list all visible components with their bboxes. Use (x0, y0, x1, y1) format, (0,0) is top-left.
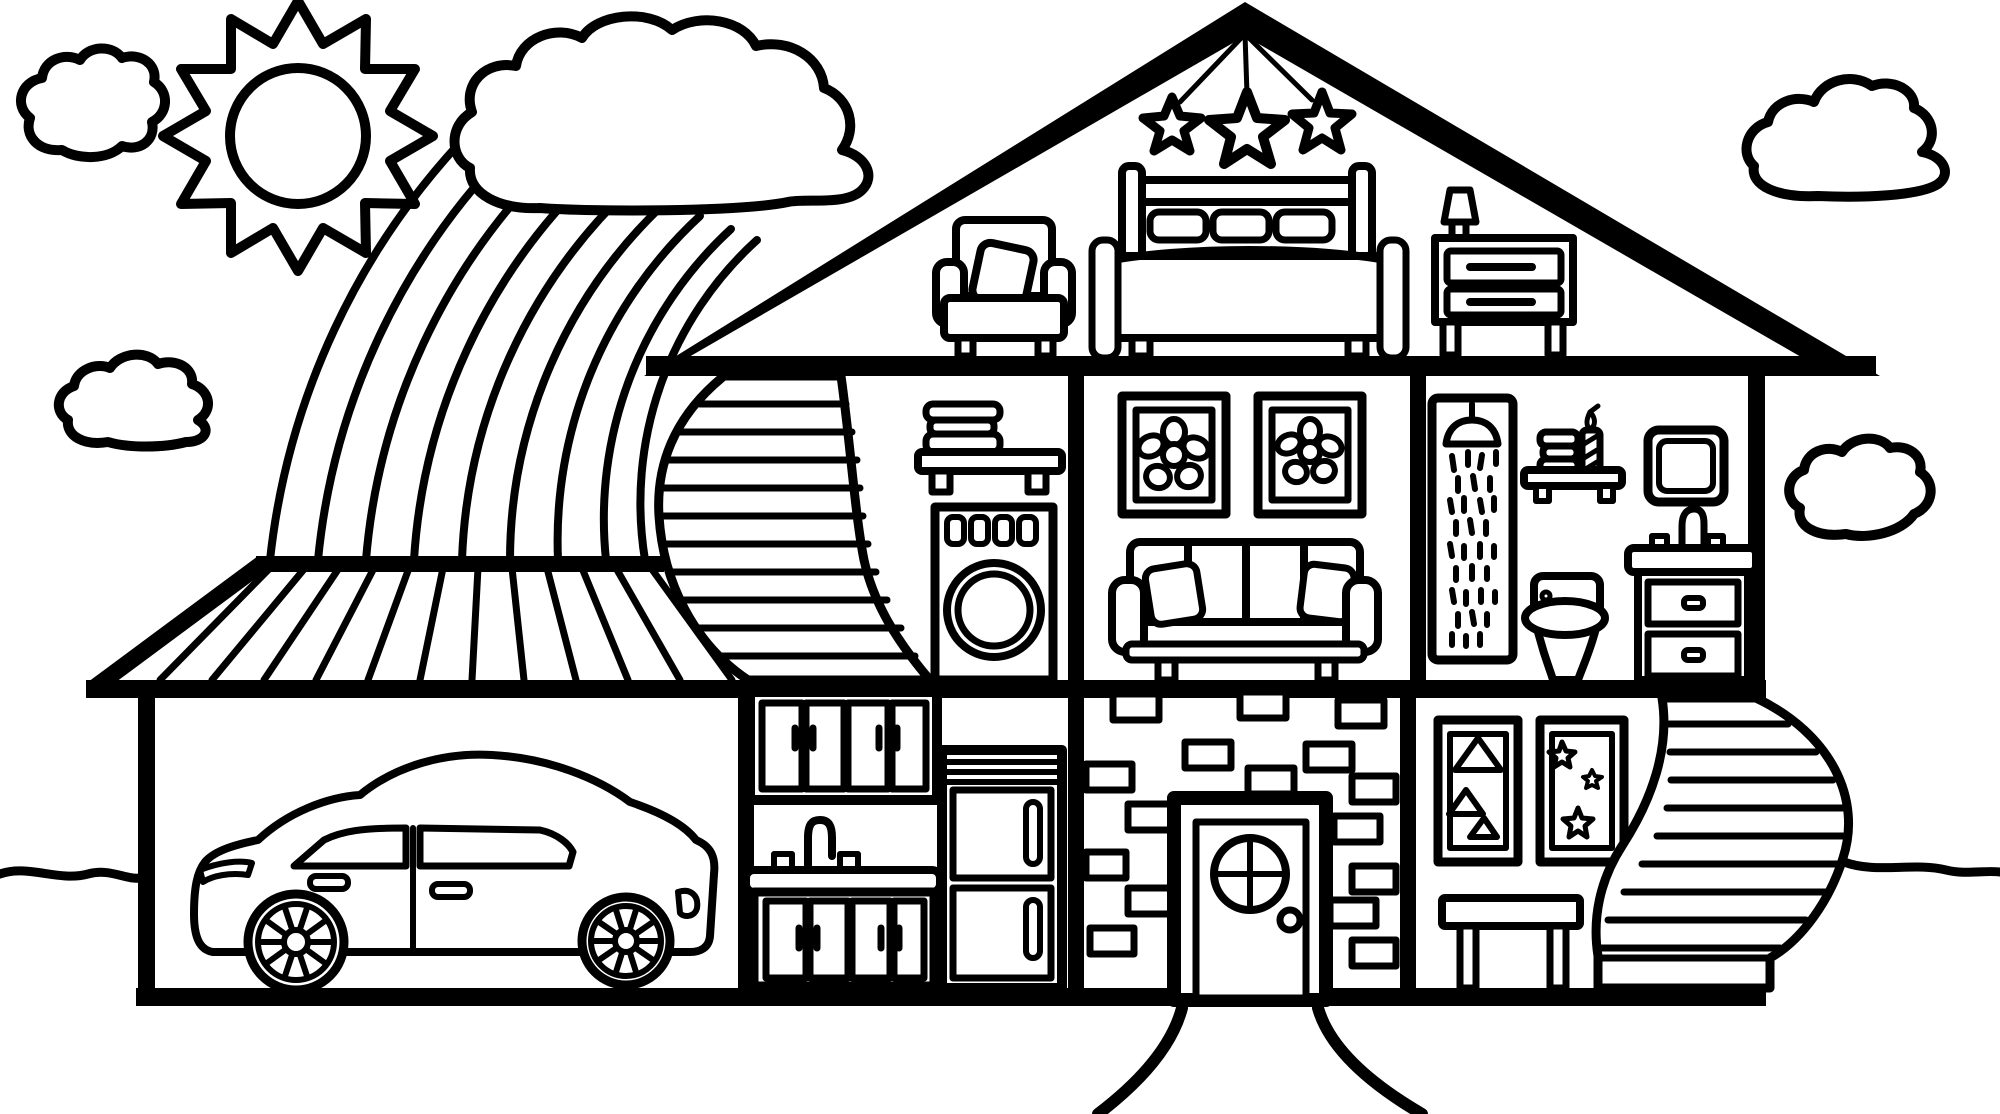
brick (1086, 852, 1126, 878)
washer-button (995, 517, 1012, 544)
coloring-page (0, 0, 2000, 1114)
washer-button (947, 517, 964, 544)
star-picture (1540, 720, 1624, 862)
flower-picture-right (1258, 396, 1362, 514)
toilet-seat (1525, 601, 1605, 635)
sun-face (230, 68, 366, 204)
bed-footpost-left (1092, 240, 1118, 358)
mirror-glass (1659, 441, 1713, 491)
brick (1090, 928, 1134, 954)
vanity-drawer-handle (1684, 650, 1703, 660)
car-taillight (678, 891, 697, 916)
brick (1352, 866, 1396, 892)
armchair-seat (944, 298, 1064, 338)
bed-pillow (1213, 212, 1269, 240)
table-leg (1460, 926, 1476, 988)
shelf-leg (1028, 471, 1046, 492)
car-wheel-front (248, 894, 344, 990)
flower-center (1300, 442, 1320, 462)
brick (1185, 742, 1231, 768)
wall-laundry-living (1068, 376, 1084, 682)
bed-pillow (1276, 212, 1332, 240)
shelf-leg (1600, 486, 1613, 501)
shelf-leg (1536, 486, 1549, 501)
cloud-top-left (21, 48, 165, 157)
washer-button (1019, 517, 1036, 544)
mirror (1648, 430, 1724, 502)
table-top (1442, 898, 1580, 926)
bed-pillow (1150, 212, 1206, 240)
wall-entry-den (1400, 698, 1416, 990)
car-window-rear (420, 828, 573, 866)
vanity-drawer-handle (1684, 598, 1703, 608)
washing-machine (935, 507, 1053, 680)
car-hub (615, 930, 637, 952)
brick (1352, 776, 1396, 802)
cloud-mid-left (59, 355, 208, 447)
bed-leg (1132, 338, 1150, 356)
washer-button (971, 517, 988, 544)
brick (1338, 700, 1384, 726)
flower-center (1163, 444, 1185, 466)
garage-roof-ridge (256, 556, 664, 572)
shower-stall (1432, 398, 1513, 660)
garage-left-wall (138, 690, 155, 990)
fridge-handle (1026, 802, 1040, 864)
brick (1113, 694, 1159, 720)
sofa-cushion (1144, 562, 1204, 625)
car-door-handle (310, 876, 348, 889)
brick (1352, 940, 1396, 966)
triangle-picture (1438, 720, 1518, 862)
coloring-page-canvas (0, 0, 2000, 1114)
brick (1086, 764, 1132, 790)
brick (1334, 816, 1380, 842)
brick (1248, 768, 1294, 794)
sofa (1112, 542, 1378, 680)
shelf-leg (932, 471, 950, 492)
doorknob (1280, 910, 1300, 930)
refrigerator (942, 750, 1062, 988)
sofa-leg (1158, 660, 1175, 680)
bed-mattress (1114, 256, 1382, 338)
car-wheel-rear (582, 897, 670, 985)
shower-head (1446, 420, 1498, 444)
brick (1306, 744, 1352, 770)
fridge-handle (1026, 900, 1040, 958)
armchair-leg (958, 338, 973, 356)
bed (1092, 166, 1406, 358)
bed-footpost-right (1380, 240, 1406, 358)
upper-cabinets (750, 692, 937, 800)
bed-leg (1348, 338, 1366, 356)
sofa-leg (1318, 660, 1335, 680)
armchair (936, 220, 1072, 356)
brick (1330, 900, 1376, 926)
bed-headboard-rail (1142, 180, 1352, 202)
fridge-vent-lines (944, 762, 1060, 782)
car-door-handle (432, 884, 470, 897)
wall-living-bathroom (1410, 376, 1426, 682)
flower-picture-left (1122, 396, 1226, 514)
front-door (1174, 798, 1326, 1000)
cloud-mid-right (1789, 439, 1931, 536)
car-hub (284, 930, 308, 954)
nightstand-leg (1443, 322, 1458, 355)
armchair-leg (1038, 338, 1053, 356)
table-leg (1550, 926, 1566, 988)
wall-kitchen-entry (1068, 698, 1084, 990)
brick (1240, 692, 1286, 718)
nightstand-leg (1548, 322, 1563, 355)
washer-door-glass (958, 574, 1030, 646)
